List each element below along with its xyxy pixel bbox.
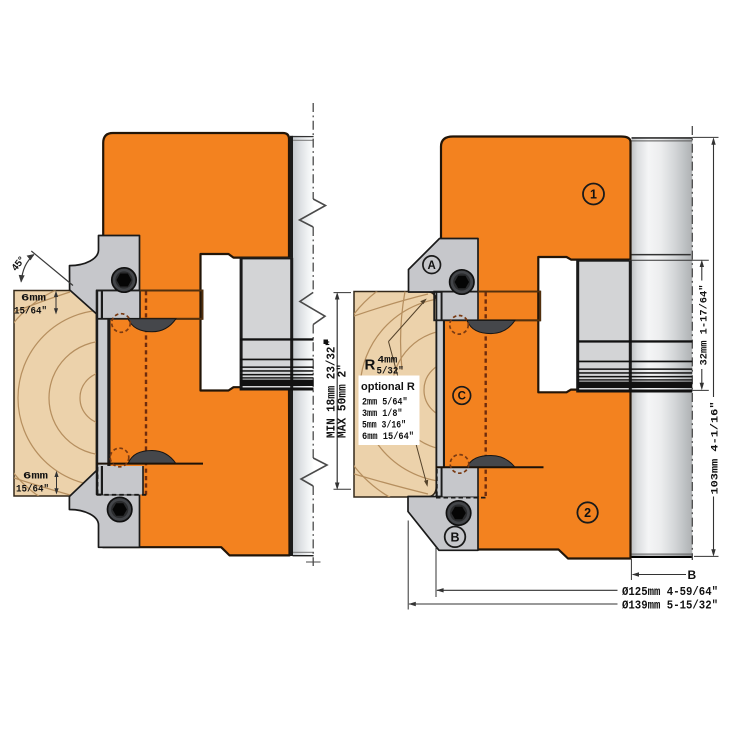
svg-text:C: C	[458, 391, 466, 403]
svg-text:R: R	[365, 357, 376, 374]
svg-text:6mm: 6mm	[21, 293, 46, 305]
svg-text:2mm 5/64": 2mm 5/64"	[362, 397, 408, 409]
svg-text:3mm 1/8": 3mm 1/8"	[362, 408, 403, 420]
svg-text:Ø139mm 5-15/32": Ø139mm 5-15/32"	[622, 599, 718, 613]
svg-text:5mm 3/16": 5mm 3/16"	[362, 420, 406, 432]
svg-text:103mm 4-1/16": 103mm 4-1/16"	[710, 402, 722, 495]
svg-text:15/64": 15/64"	[16, 484, 49, 496]
svg-text:optional R: optional R	[361, 381, 415, 393]
svg-text:32mm 1-17/64": 32mm 1-17/64"	[698, 285, 710, 366]
svg-text:B: B	[688, 568, 697, 582]
svg-text:MAX 50mm 2": MAX 50mm 2"	[336, 364, 349, 438]
svg-text:A: A	[428, 260, 436, 272]
svg-text:Ø125mm 4-59/64": Ø125mm 4-59/64"	[622, 585, 718, 599]
svg-text:15/64": 15/64"	[14, 306, 47, 318]
svg-text:1: 1	[590, 187, 597, 201]
svg-text:2: 2	[584, 506, 591, 520]
svg-text:6mm: 6mm	[23, 471, 48, 483]
svg-text:B: B	[450, 530, 459, 544]
svg-text:6mm 15/64": 6mm 15/64"	[362, 431, 414, 443]
